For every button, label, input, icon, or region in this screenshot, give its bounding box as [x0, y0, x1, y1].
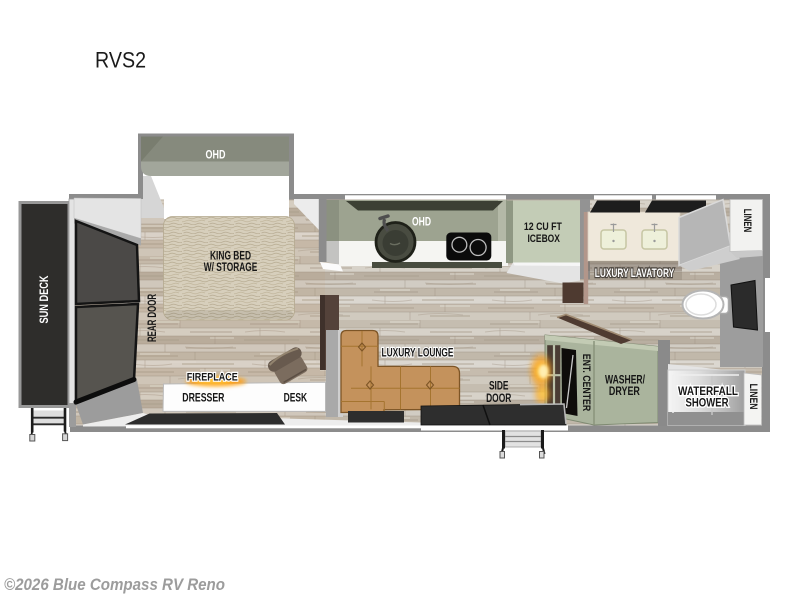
svg-text:LUXURY LAVATORY: LUXURY LAVATORY [595, 268, 675, 280]
svg-text:LUXURY LOUNGE: LUXURY LOUNGE [382, 348, 454, 360]
svg-text:SHOWER: SHOWER [686, 398, 730, 410]
svg-text:DRESSER: DRESSER [182, 393, 225, 405]
svg-text:LINEN: LINEN [747, 384, 759, 410]
svg-text:ICEBOX: ICEBOX [527, 233, 560, 245]
svg-text:SUN DECK: SUN DECK [39, 275, 51, 324]
svg-text:ENT. CENTER: ENT. CENTER [580, 354, 592, 412]
svg-text:RVS2: RVS2 [95, 48, 146, 73]
svg-text:DESK: DESK [284, 393, 308, 405]
svg-text:12 CU FT: 12 CU FT [524, 221, 562, 233]
svg-text:FIREPLACE: FIREPLACE [187, 371, 238, 383]
svg-text:OHD: OHD [206, 150, 226, 162]
svg-text:DOOR: DOOR [486, 391, 511, 405]
svg-text:©2026 Blue Compass RV Reno: ©2026 Blue Compass RV Reno [4, 576, 225, 594]
svg-text:W/ STORAGE: W/ STORAGE [204, 262, 258, 274]
svg-text:LINEN: LINEN [741, 209, 753, 233]
svg-text:WASHER/: WASHER/ [605, 375, 646, 387]
svg-text:OHD: OHD [412, 217, 431, 229]
svg-text:REAR DOOR: REAR DOOR [147, 294, 159, 342]
svg-text:WATERFALL: WATERFALL [678, 386, 738, 398]
svg-text:DRYER: DRYER [609, 386, 641, 398]
svg-text:KING BED: KING BED [210, 251, 251, 263]
